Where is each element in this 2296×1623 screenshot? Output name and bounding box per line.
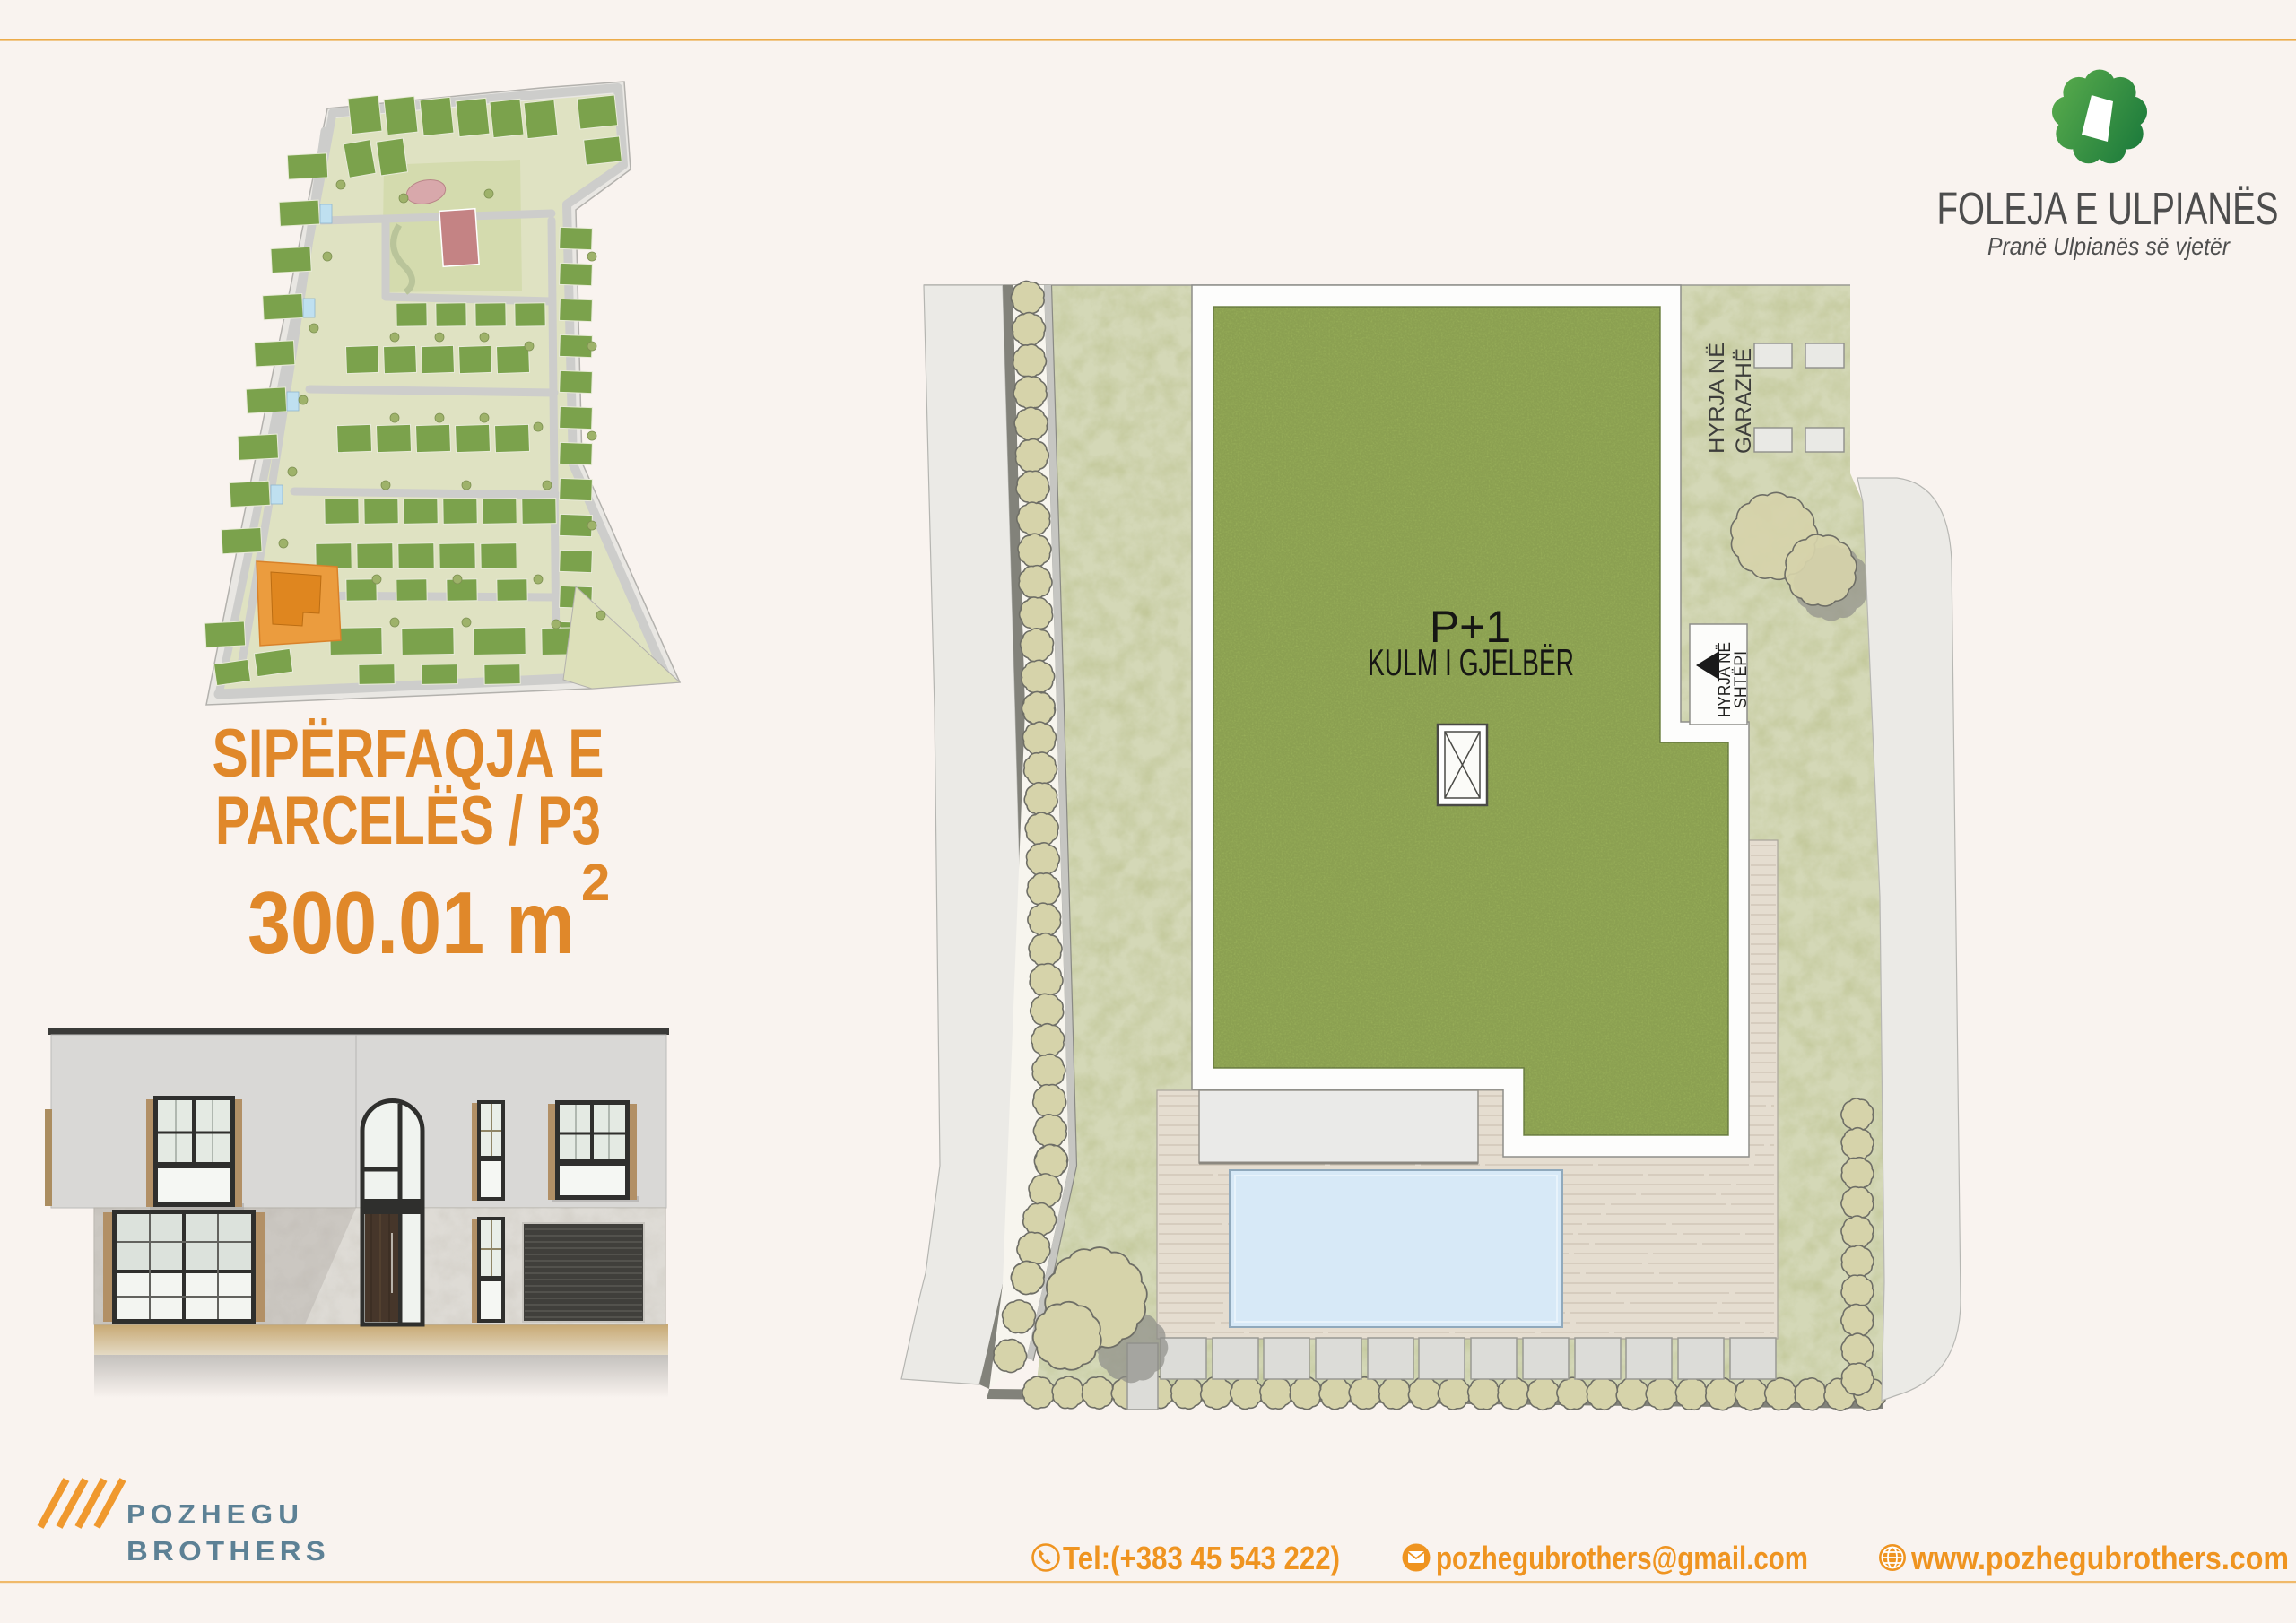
svg-text:SIPËRFAQJA E: SIPËRFAQJA E: [213, 716, 604, 792]
svg-text:www.pozhegubrothers.com: www.pozhegubrothers.com: [1910, 1540, 2289, 1576]
svg-text:SHTËPI: SHTËPI: [1732, 651, 1751, 708]
svg-text:GARAZHË: GARAZHË: [1732, 348, 1756, 454]
svg-text:FOLEJA E ULPIANËS: FOLEJA E ULPIANËS: [1937, 183, 2279, 234]
svg-text:Tel:(+383 45 543 222): Tel:(+383 45 543 222): [1063, 1540, 1340, 1576]
svg-text:KULM I GJELBËR: KULM I GJELBËR: [1368, 641, 1574, 683]
svg-text:POZHEGU: POZHEGU: [126, 1498, 304, 1530]
svg-text:300.01 m: 300.01 m: [248, 873, 575, 972]
svg-text:BROTHERS: BROTHERS: [126, 1535, 330, 1567]
svg-text:pozhegubrothers@gmail.com: pozhegubrothers@gmail.com: [1436, 1540, 1808, 1576]
svg-text:HYRJA NË: HYRJA NË: [1705, 343, 1729, 454]
svg-text:2: 2: [581, 854, 610, 912]
svg-text:PARCELËS / P3: PARCELËS / P3: [215, 783, 601, 859]
svg-text:Pranë Ulpianës së vjetër: Pranë Ulpianës së vjetër: [1987, 232, 2231, 260]
